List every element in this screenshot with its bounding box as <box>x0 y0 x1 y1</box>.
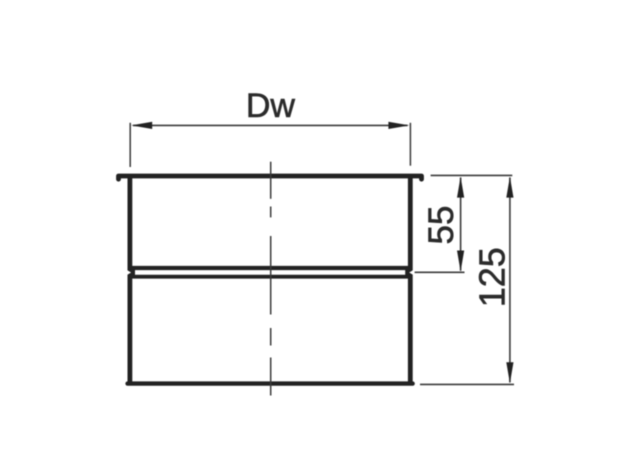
svg-text:125: 125 <box>472 247 513 307</box>
svg-text:Dw: Dw <box>246 87 296 125</box>
svg-text:55: 55 <box>422 206 461 245</box>
